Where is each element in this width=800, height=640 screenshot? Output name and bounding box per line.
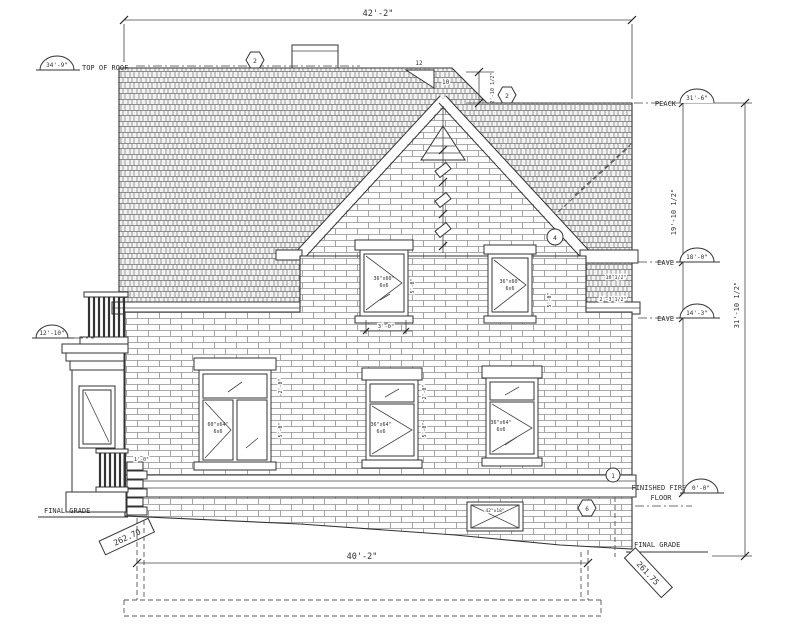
level-eave-upper: EAVE 18'-0" bbox=[638, 248, 720, 267]
callout-floor-note: 1 bbox=[606, 468, 620, 482]
level-first-floor: FINISHED FIRST FLOOR 0'-0" bbox=[631, 479, 724, 506]
dim-upper-window-width: 3'-0" bbox=[378, 324, 395, 330]
grade-elevation-tag: 262.70 bbox=[99, 518, 154, 554]
balcony-top-rail bbox=[84, 292, 128, 297]
level-value: 31'-6" bbox=[686, 95, 708, 102]
callout-number: 6 bbox=[585, 506, 589, 513]
pitch-run: 10 bbox=[442, 79, 450, 86]
callout-roof-note: 2 bbox=[246, 52, 264, 68]
level-balcony: 12'-10" bbox=[32, 325, 94, 338]
window-sill bbox=[482, 458, 542, 466]
level-label: EAVE bbox=[657, 315, 674, 323]
level-label: TOP OF ROOF bbox=[82, 64, 128, 72]
window-size-label: 36"x60" bbox=[373, 276, 394, 282]
window-sill bbox=[484, 316, 536, 323]
right-sash bbox=[237, 400, 267, 460]
elevation-drawing-canvas: 36"x60" 6x6 3'-0" 5'-0" 36"x60" 6x6 5'-0… bbox=[0, 0, 800, 640]
quoin bbox=[127, 462, 143, 470]
dim-wall-sash-height: 5'-0" bbox=[547, 292, 553, 307]
callout-number: 2 bbox=[253, 57, 257, 65]
quoin bbox=[127, 471, 147, 479]
window-header bbox=[362, 368, 422, 380]
callout-number: 1 bbox=[611, 473, 615, 480]
window-type-label: 6x6 bbox=[379, 283, 388, 289]
level-label-line1: FINISHED FIRST bbox=[631, 484, 691, 492]
chimney bbox=[292, 45, 338, 68]
dim-top-width-text: 42'-2" bbox=[363, 9, 394, 19]
window-type-label: 6x6 bbox=[376, 429, 385, 435]
dim-transom-height: 2'-0" bbox=[422, 384, 428, 399]
level-value: 12'-10" bbox=[39, 330, 64, 337]
window-sill bbox=[362, 460, 422, 468]
window-type-label: 6x6 bbox=[505, 286, 514, 292]
quoin bbox=[127, 489, 147, 497]
foundation-brick-wall bbox=[125, 497, 632, 549]
dim-overall-bottom: 40'-2" bbox=[133, 552, 592, 567]
transom-light bbox=[203, 374, 267, 398]
dim-sash-height: 5'-0" bbox=[422, 422, 428, 437]
window-size-label: 42"x18" bbox=[485, 508, 504, 514]
dim-total-height: 31'-10 1/2" bbox=[733, 282, 741, 328]
right-eave-return bbox=[580, 250, 638, 263]
window-size-label: 36"x64" bbox=[370, 422, 391, 428]
window-size-label: 60"x64" bbox=[207, 422, 228, 428]
dim-bottom-width-text: 40'-2" bbox=[347, 552, 378, 562]
dim-porch-step: 1'-0" bbox=[134, 457, 149, 463]
window-lower-mid: 36"x64" 6x6 2'-0" 5'-0" bbox=[362, 368, 428, 468]
level-value: 0'-0" bbox=[692, 485, 710, 492]
dim-overhang-b: 2'-3 1/2" bbox=[599, 297, 626, 303]
porch-rail-bottom bbox=[96, 487, 128, 492]
window-header bbox=[482, 366, 542, 378]
window-header bbox=[355, 240, 413, 250]
dim-transom-height: 2'-0" bbox=[278, 378, 284, 393]
callout-number: 2 bbox=[505, 92, 509, 100]
dim-roof-offset-text: 2'-10 1/2" bbox=[490, 72, 496, 103]
level-peak: PEACK 31'-6" bbox=[634, 89, 714, 108]
dim-roof-height-upper: 19'-10 1/2" bbox=[670, 189, 678, 235]
window-upper-left: 36"x60" 6x6 3'-0" 5'-0" bbox=[355, 240, 416, 334]
window-lower-left: 60"x64" 6x6 2'-0" 5'-0" bbox=[194, 358, 284, 470]
balcony-balusters bbox=[89, 297, 124, 337]
window-type-label: 6x6 bbox=[496, 427, 505, 433]
level-label: PEACK bbox=[655, 100, 677, 108]
basement-window: 42"x18" bbox=[467, 502, 523, 531]
callout-number: 4 bbox=[553, 234, 557, 242]
dim-overhang-a: 10 1/2" bbox=[605, 275, 626, 281]
window-header bbox=[484, 245, 536, 254]
callout-basement-note: 6 bbox=[578, 500, 596, 516]
first-floor-trim-band bbox=[121, 475, 636, 497]
window-size-label: 36"x60" bbox=[499, 279, 520, 285]
window-size-label: 36"x64" bbox=[490, 420, 511, 426]
quoin bbox=[127, 480, 143, 488]
window-sill bbox=[355, 316, 413, 323]
left-eave-return bbox=[276, 250, 302, 260]
grade-elevation-tag: 261.75 bbox=[624, 548, 672, 598]
window-header bbox=[194, 358, 276, 370]
quoin bbox=[127, 498, 143, 506]
level-value: 14'-3" bbox=[686, 310, 708, 317]
porch-cornice-mid bbox=[66, 353, 124, 361]
dim-sash-height: 5'-0" bbox=[410, 278, 416, 293]
level-eave-lower: EAVE 14'-3" bbox=[638, 304, 720, 323]
callout-eave-note: 4 bbox=[547, 229, 563, 245]
pitch-rise: 12 bbox=[415, 60, 423, 67]
porch-cornice-lower bbox=[70, 361, 124, 370]
window-lower-right: 36"x64" 6x6 bbox=[482, 366, 542, 466]
grade-label: FINAL GRADE bbox=[634, 541, 680, 549]
porch-cornice-upper bbox=[62, 344, 128, 353]
level-label: EAVE bbox=[657, 259, 674, 267]
house-side-elevation: 36"x60" 6x6 3'-0" 5'-0" 36"x60" 6x6 5'-0… bbox=[0, 0, 800, 640]
grade-label: FINAL GRADE bbox=[44, 507, 90, 515]
window-sash bbox=[492, 258, 528, 312]
window-sill bbox=[194, 462, 276, 470]
level-label-line2: FLOOR bbox=[650, 494, 672, 502]
level-value: 18'-0" bbox=[686, 254, 708, 261]
porch-rail-top bbox=[96, 449, 128, 453]
window-type-label: 6x6 bbox=[213, 429, 222, 435]
dim-sash-height: 5'-0" bbox=[278, 422, 284, 437]
level-value: 34'-9" bbox=[46, 62, 68, 69]
quoin bbox=[127, 507, 147, 515]
